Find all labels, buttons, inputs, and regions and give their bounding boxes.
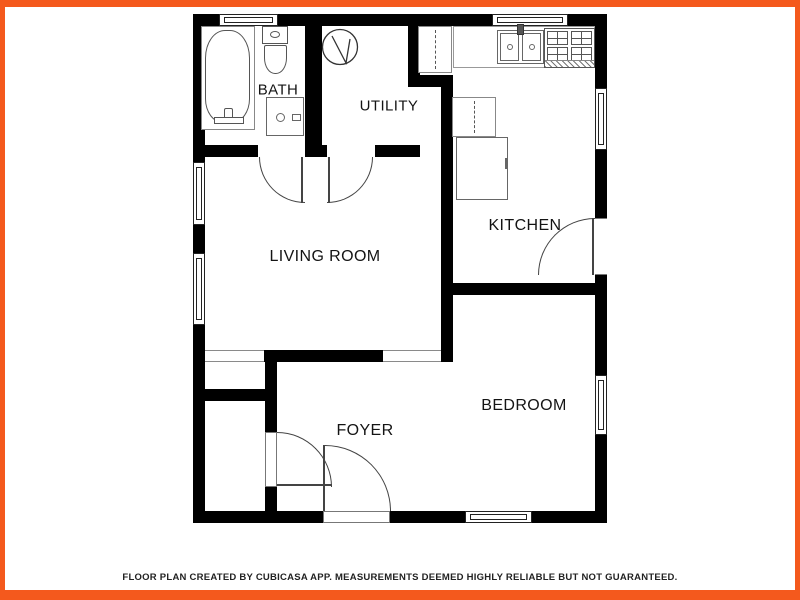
room-label-living-room: LIVING ROOM (269, 248, 380, 266)
wall-closet-divider (205, 389, 265, 401)
room-label-utility: UTILITY (360, 98, 419, 115)
disclaimer-text: FLOOR PLAN CREATED BY CUBICASA APP. MEAS… (0, 572, 800, 583)
window-pane (224, 17, 273, 23)
wall-kitchen-bedroom-divider (441, 283, 595, 295)
toilet-icon (264, 45, 287, 74)
window-living-lower (193, 253, 205, 325)
window-kitchen-top (492, 14, 568, 26)
utility-door-opening (327, 145, 375, 157)
closet-door-opening (265, 432, 277, 487)
window-pane (470, 514, 527, 520)
window-pane (196, 167, 202, 220)
upper-cabinet-icon (418, 26, 452, 73)
room-label-bath: BATH (258, 82, 299, 99)
window-living-upper (193, 162, 205, 225)
wall-living-bottom (264, 350, 383, 362)
burner (571, 31, 592, 45)
water-heater-icon (321, 28, 359, 66)
sink-drain-right (529, 44, 535, 50)
living-foyer-passage (383, 350, 441, 362)
refrigerator-icon (456, 137, 508, 200)
upper-cabinet-icon (452, 97, 496, 137)
burner (547, 47, 568, 61)
door-swing-icon-front (325, 445, 391, 511)
window-pane (598, 380, 604, 430)
door-leaf-utility (328, 157, 330, 203)
refrigerator-handle (505, 158, 507, 169)
wall-outer-bottom (193, 511, 607, 523)
toilet-button (270, 31, 280, 38)
window-kitchen-right (595, 88, 607, 150)
bath-door-opening (258, 145, 305, 157)
bathtub-faucet-bar (214, 117, 244, 124)
kitchen-faucet-icon (517, 24, 524, 35)
window-pane (598, 93, 604, 145)
floor-plan: BATH UTILITY LIVING ROOM KITCHEN BEDROOM… (0, 0, 800, 600)
burner (547, 31, 568, 45)
living-closet-passage (205, 350, 264, 362)
kitchen-door-opening (595, 218, 607, 275)
bathroom-sink-drain (276, 113, 285, 122)
window-pane (497, 17, 563, 23)
window-bath (219, 14, 278, 26)
bathroom-sink-faucet (292, 114, 301, 121)
stove-front-hatch (545, 60, 594, 67)
stove-icon (544, 28, 595, 68)
door-leaf-bath (301, 157, 303, 203)
wall-bath-utility-bottom (205, 145, 420, 157)
room-label-kitchen: KITCHEN (488, 217, 561, 235)
door-leaf-kitchen (592, 218, 594, 275)
room-label-bedroom: BEDROOM (481, 397, 566, 415)
door-swing-icon-bath (259, 157, 305, 203)
window-bedroom-bottom (465, 511, 532, 523)
window-bedroom-right (595, 375, 607, 435)
sink-drain-left (507, 44, 513, 50)
door-swing-icon-utility (327, 157, 373, 203)
cabinet-dash (435, 30, 436, 69)
front-door-opening (323, 511, 390, 523)
burner (571, 47, 592, 61)
cabinet-dash (474, 101, 475, 133)
window-pane (196, 258, 202, 320)
kitchen-sink-icon (497, 30, 544, 64)
wall-bath-utility-divider (305, 26, 322, 145)
door-leaf-front (323, 445, 325, 511)
room-label-foyer: FOYER (336, 422, 393, 440)
